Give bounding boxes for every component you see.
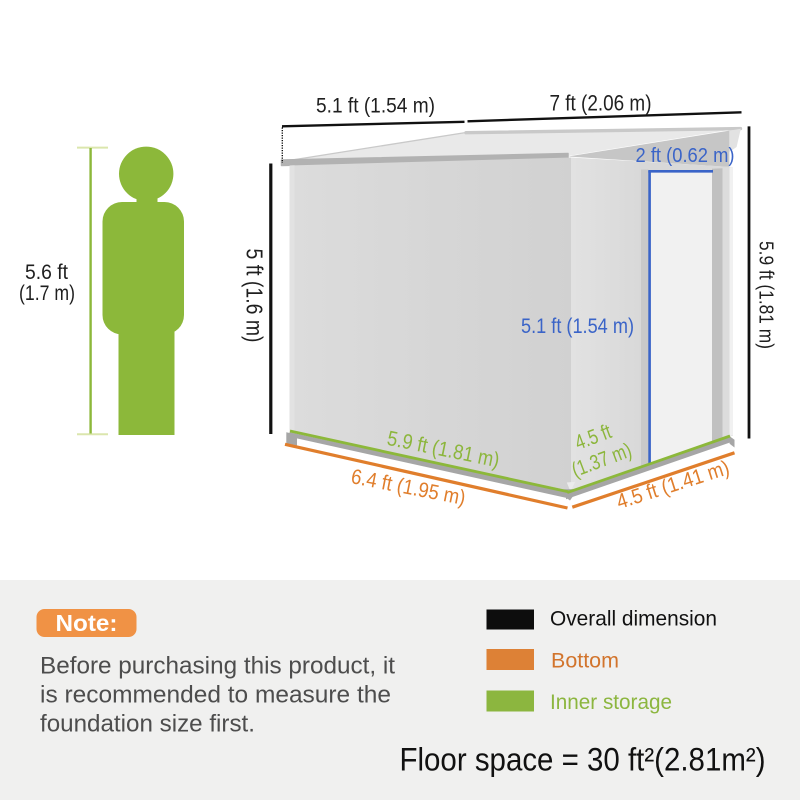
svg-text:Before purchasing this product: Before purchasing this product, it <box>40 653 395 680</box>
svg-text:5 ft (1.6 m): 5 ft (1.6 m) <box>242 249 268 343</box>
svg-text:Bottom: Bottom <box>551 649 619 673</box>
svg-text:Inner storage: Inner storage <box>550 690 672 714</box>
svg-text:Floor space = 30 ft²(2.81m²): Floor space = 30 ft²(2.81m²) <box>400 742 766 778</box>
svg-text:5.9 ft (1.81 m): 5.9 ft (1.81 m) <box>755 241 778 349</box>
svg-text:5.1 ft (1.54 m): 5.1 ft (1.54 m) <box>521 314 634 338</box>
svg-text:2 ft (0.62 m): 2 ft (0.62 m) <box>636 144 735 167</box>
svg-text:foundation size first.: foundation size first. <box>40 711 255 738</box>
svg-text:7 ft (2.06 m): 7 ft (2.06 m) <box>550 91 652 116</box>
svg-text:is recommended to measure the: is recommended to measure the <box>40 682 391 709</box>
svg-text:Note:: Note: <box>56 610 118 636</box>
svg-text:Overall dimension: Overall dimension <box>550 607 717 631</box>
svg-text:5.1 ft (1.54 m): 5.1 ft (1.54 m) <box>316 94 435 118</box>
svg-text:(1.7 m): (1.7 m) <box>19 281 75 305</box>
